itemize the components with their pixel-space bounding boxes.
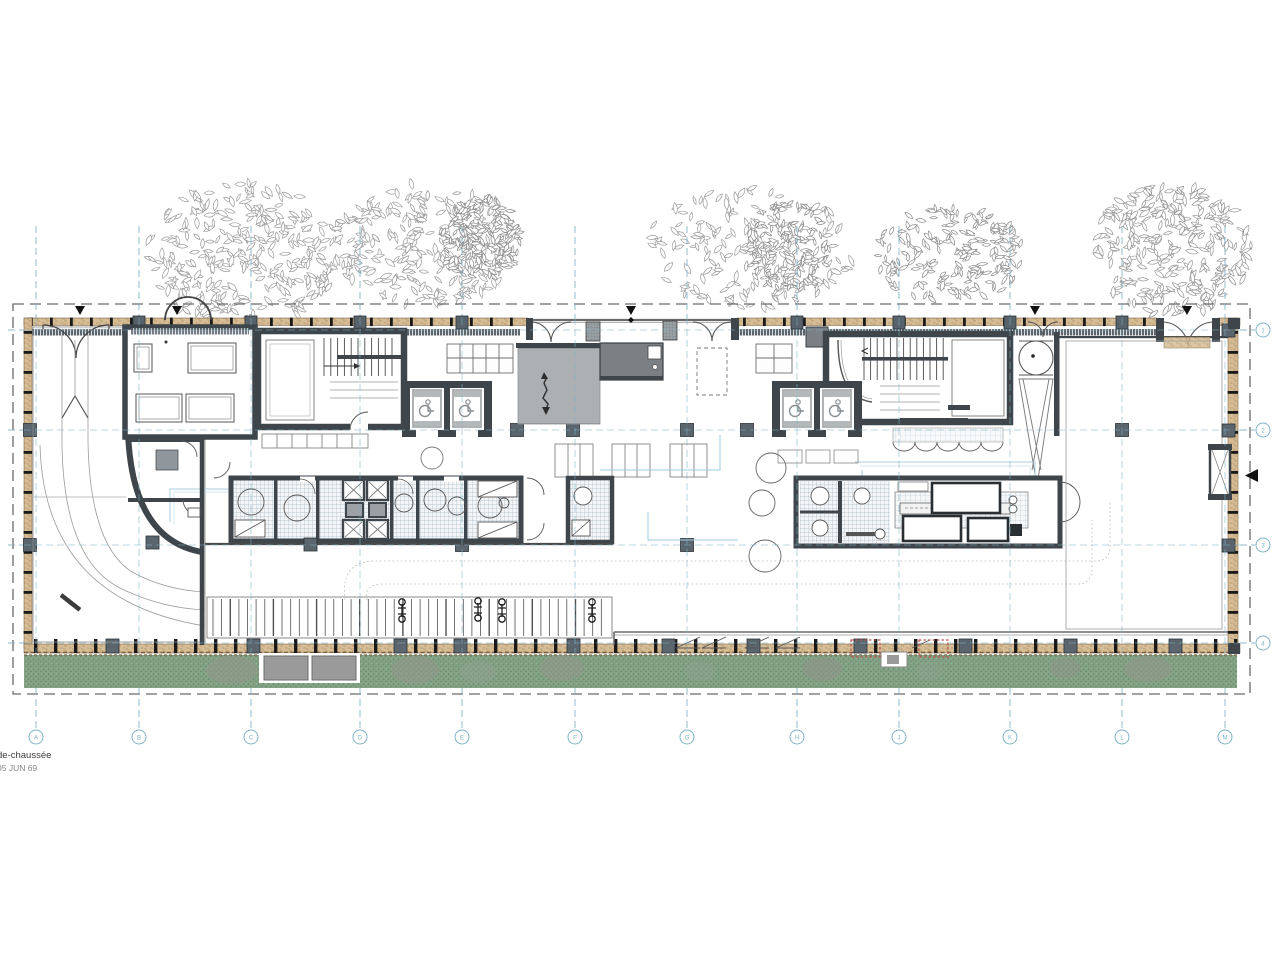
svg-text:de-chaussée: de-chaussée <box>0 750 51 761</box>
svg-text:D: D <box>358 736 363 742</box>
svg-text:J: J <box>898 736 901 742</box>
svg-text:M: M <box>1223 736 1228 742</box>
svg-text:H: H <box>795 736 799 742</box>
svg-text:A: A <box>34 736 38 742</box>
svg-text:F: F <box>573 736 577 742</box>
svg-text:G: G <box>685 736 690 742</box>
svg-text:05 JUN 69: 05 JUN 69 <box>0 763 37 773</box>
svg-text:C: C <box>249 736 254 742</box>
svg-text:K: K <box>1008 736 1012 742</box>
svg-text:E: E <box>460 736 464 742</box>
svg-text:B: B <box>137 736 141 742</box>
